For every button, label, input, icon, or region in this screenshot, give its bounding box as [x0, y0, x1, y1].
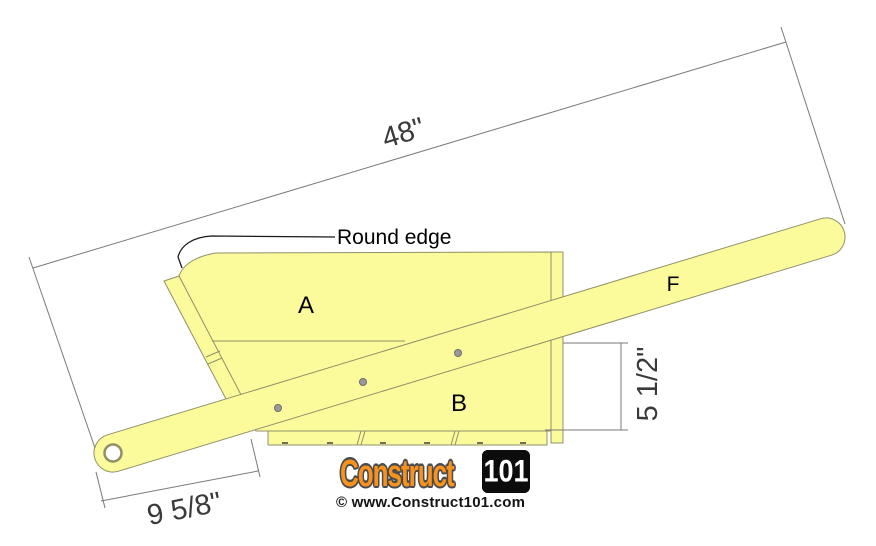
bottom-slat-strip: [268, 431, 547, 445]
extension-line: [96, 472, 105, 508]
logo-badge-number: 101: [483, 454, 528, 490]
rear-board-edge: [551, 252, 563, 443]
axle-hole: [105, 445, 122, 462]
extension-line: [781, 27, 845, 224]
screw-dot: [455, 350, 462, 357]
construct101-logo-text: Construct: [340, 451, 454, 496]
construct101-logo-badge: 101: [482, 450, 530, 493]
panel-a-label: A: [298, 292, 314, 319]
extension-line: [29, 257, 95, 448]
plan-diagram-canvas: 48" 9 5/8" 5 1/2" Round edge A B F Const…: [0, 0, 876, 546]
dimension-9-5-8-label: 9 5/8": [145, 486, 225, 532]
handle-f-label: F: [667, 273, 680, 296]
round-edge-label: Round edge: [337, 226, 451, 249]
panel-b-label: B: [451, 390, 467, 417]
dimension-5-1-2-label: 5 1/2": [632, 347, 664, 422]
website-url: © www.Construct101.com: [336, 494, 525, 511]
screw-dot: [360, 379, 367, 386]
dimension-48-label: 48": [378, 112, 428, 155]
screw-dot: [275, 405, 282, 412]
